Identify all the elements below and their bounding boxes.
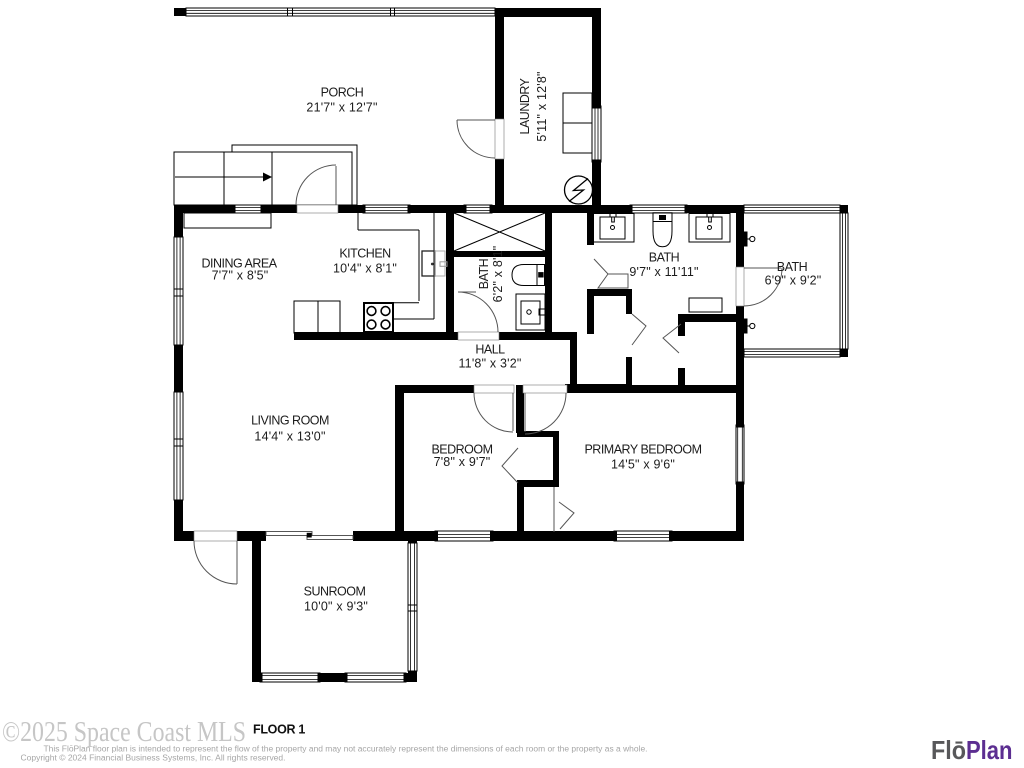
svg-text:5'11" x 12'8": 5'11" x 12'8" xyxy=(535,71,549,141)
svg-text:PORCH: PORCH xyxy=(321,86,364,100)
svg-text:BATH: BATH xyxy=(477,258,491,289)
svg-text:©2025 Space Coast MLS: ©2025 Space Coast MLS xyxy=(2,716,246,748)
svg-text:21'7" x 12'7": 21'7" x 12'7" xyxy=(306,101,377,115)
svg-text:10'4" x 8'1": 10'4" x 8'1" xyxy=(333,262,397,276)
svg-text:7'7" x 8'5": 7'7" x 8'5" xyxy=(212,269,269,283)
svg-text:This FlōPlan floor plan is int: This FlōPlan floor plan is intended to r… xyxy=(44,745,648,754)
svg-text:7'8" x 9'7": 7'8" x 9'7" xyxy=(434,455,491,469)
svg-text:BATH: BATH xyxy=(777,260,808,274)
svg-text:HALL: HALL xyxy=(475,343,505,357)
svg-text:14'4" x 13'0": 14'4" x 13'0" xyxy=(254,430,325,444)
svg-text:Plan: Plan xyxy=(966,735,1013,765)
svg-text:KITCHEN: KITCHEN xyxy=(339,247,391,261)
svg-text:Copyright © 2024 Financial Bus: Copyright © 2024 Financial Business Syst… xyxy=(21,754,286,763)
svg-text:14'5" x 9'6": 14'5" x 9'6" xyxy=(611,458,675,472)
svg-text:6'2" x 8'1": 6'2" x 8'1" xyxy=(491,246,505,303)
svg-text:10'0" x 9'3": 10'0" x 9'3" xyxy=(304,600,368,614)
svg-text:11'8" x 3'2": 11'8" x 3'2" xyxy=(458,357,521,371)
svg-text:Flō: Flō xyxy=(931,735,966,765)
svg-text:9'7" x 11'11": 9'7" x 11'11" xyxy=(629,265,698,279)
svg-text:LAUNDRY: LAUNDRY xyxy=(518,77,532,134)
svg-text:LIVING ROOM: LIVING ROOM xyxy=(251,414,329,428)
svg-text:BATH: BATH xyxy=(649,251,680,265)
svg-text:FLOOR 1: FLOOR 1 xyxy=(253,723,305,737)
svg-text:PRIMARY BEDROOM: PRIMARY BEDROOM xyxy=(584,443,701,457)
svg-text:SUNROOM: SUNROOM xyxy=(304,585,366,599)
svg-text:6'9" x 9'2": 6'9" x 9'2" xyxy=(765,274,822,288)
